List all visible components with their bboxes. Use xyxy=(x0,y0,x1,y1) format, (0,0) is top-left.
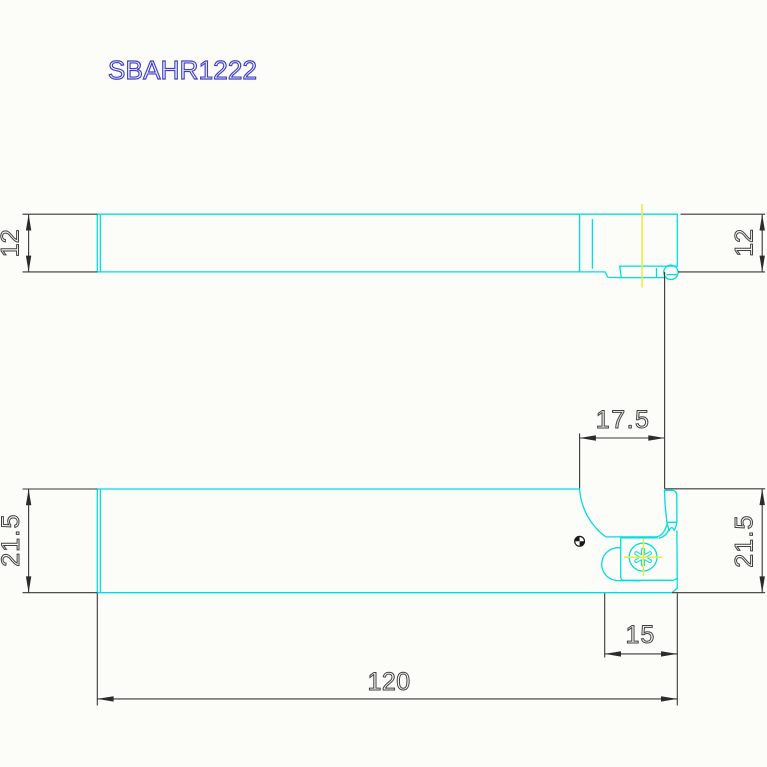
svg-text:120: 120 xyxy=(368,668,411,696)
svg-text:12: 12 xyxy=(0,229,25,257)
svg-text:12: 12 xyxy=(731,229,759,257)
svg-text:17.5: 17.5 xyxy=(596,406,651,434)
svg-text:21.5: 21.5 xyxy=(0,513,25,566)
svg-text:SBAHR1222: SBAHR1222 xyxy=(108,55,257,85)
svg-text:15: 15 xyxy=(626,621,656,649)
svg-text:21.5: 21.5 xyxy=(730,514,758,567)
